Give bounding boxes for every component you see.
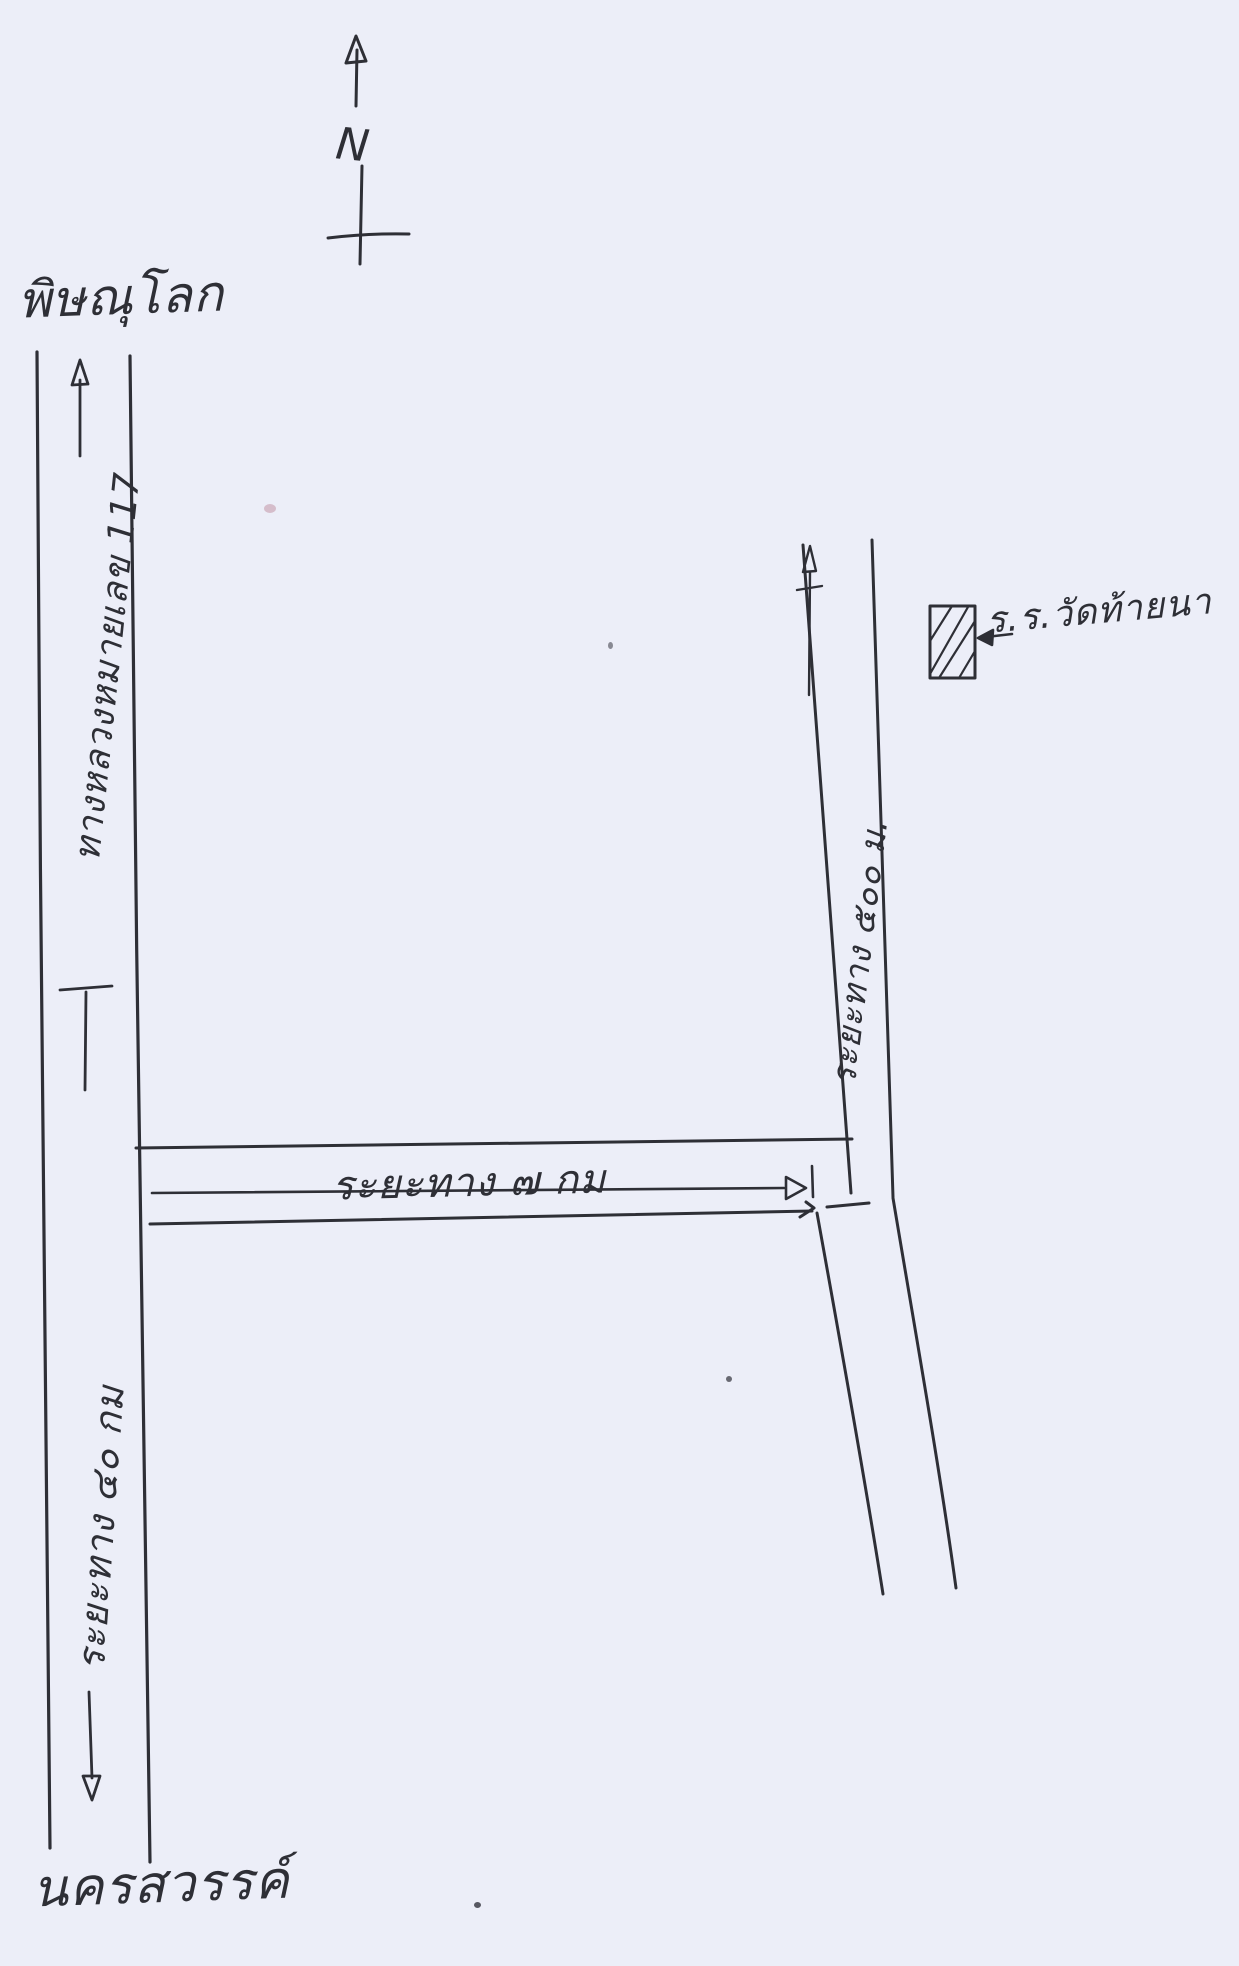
north-city-label: พิษณุโลก xyxy=(17,254,226,340)
scan-speck xyxy=(474,1902,481,1908)
landmark-marker xyxy=(930,606,975,678)
crosshair-icon xyxy=(328,166,409,264)
side-road-arrow-icon xyxy=(797,546,822,695)
north-arrow-icon xyxy=(346,36,366,106)
distance-tick xyxy=(60,986,112,1090)
northbound-arrow-icon xyxy=(72,360,88,456)
scan-speck xyxy=(264,504,276,513)
southbound-arrow-icon xyxy=(83,1692,100,1800)
south-city-label: นครสวรรค์ xyxy=(31,1838,292,1930)
scan-speck xyxy=(726,1376,732,1382)
scan-speck xyxy=(608,642,613,649)
southeast-road xyxy=(817,1198,956,1594)
branch-distance-label: ระยะทาง ๗ กม xyxy=(331,1146,607,1217)
compass-letter: N xyxy=(333,118,372,172)
sketch-map-page: N พิษณุโลก ทางหลวงหมายเลข 117 ระยะทาง ๔๐… xyxy=(0,0,1239,1966)
